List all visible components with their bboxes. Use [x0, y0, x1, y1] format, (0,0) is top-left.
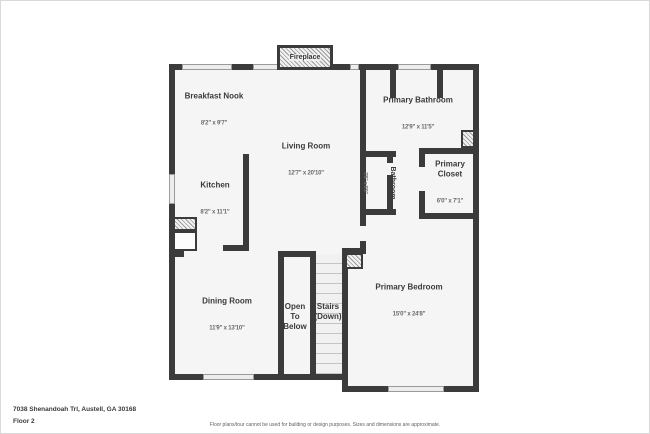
- window-dining-bottom: [203, 374, 254, 380]
- room-name: Breakfast Nook: [185, 92, 244, 102]
- room-name: Living Room: [282, 142, 330, 152]
- window-breakfast-top: [182, 64, 232, 70]
- room-label-kitchen: Kitchen 8'2" x 11'1": [200, 163, 229, 234]
- room-label-primary-bedroom: Primary Bedroom 15'0" x 24'8": [375, 265, 442, 336]
- wall-bathroom-right-upper: [387, 151, 393, 163]
- fireplace-label: Fireplace: [289, 54, 322, 61]
- room-label-primary-bathroom: Primary Bathroom 12'9" x 11'5": [383, 78, 453, 149]
- room-dims: 12'9" x 11'5": [383, 125, 453, 131]
- wall-bottom-left: [169, 374, 348, 380]
- kitchen-niche: [173, 231, 197, 251]
- wall-stairs-right: [342, 254, 348, 380]
- floorplan-image: Fireplace Breakfast Nook 8'2" x 9'7" Kit…: [0, 0, 650, 434]
- room-name: Stairs (Down): [314, 302, 341, 322]
- room-label-open-to-below: Open To Below: [283, 284, 307, 350]
- room-label-bathroom: Bathroom 3'6" x 6'9": [344, 166, 414, 199]
- room-name: Primary Bathroom: [383, 96, 453, 106]
- wall-kitchen-flange: [223, 245, 249, 251]
- room-dims: 8'2" x 11'1": [200, 210, 229, 216]
- room-label-breakfast-nook: Breakfast Nook 8'2" x 9'7": [185, 74, 244, 145]
- room-dims: 11'9" x 13'10": [202, 326, 252, 332]
- room-name: Primary Bedroom: [375, 283, 442, 293]
- wall-dining-top-stub: [169, 251, 184, 257]
- window-pbath-top: [398, 64, 431, 70]
- room-dims: 12'7" x 20'10": [282, 171, 330, 177]
- wall-living-suite-divider: [360, 70, 366, 226]
- room-name: Kitchen: [200, 181, 229, 191]
- room-dims: 3'6" x 6'9": [362, 166, 368, 199]
- room-dims: 6'0" x 7'1": [435, 199, 465, 205]
- room-label-dining-room: Dining Room 11'9" x 13'10": [202, 279, 252, 350]
- footer-address: 7038 Shenandoah Trl, Austell, GA 30168: [13, 406, 136, 413]
- room-name: Dining Room: [202, 297, 252, 307]
- fireplace-box: Fireplace: [277, 45, 333, 70]
- room-name: Bathroom: [387, 166, 396, 199]
- chimney-kitchen-icon: [173, 217, 197, 231]
- wall-right: [473, 64, 479, 392]
- footer-disclaimer: Floor plans/tour cannot be used for buil…: [1, 422, 649, 428]
- room-label-primary-closet: Primary Closet 6'0" x 7'1": [435, 142, 465, 223]
- room-name: Primary Closet: [435, 160, 465, 180]
- room-name: Open To Below: [283, 302, 307, 332]
- room-dims: 8'2" x 9'7": [185, 121, 244, 127]
- window-living-top-left: [253, 64, 279, 70]
- wall-kitchen-divider: [243, 154, 249, 251]
- room-dims: 15'0" x 24'8": [375, 312, 442, 318]
- chimney-bedroom-icon: [345, 253, 363, 269]
- window-bedroom-bottom: [388, 386, 444, 392]
- room-label-stairs: Stairs (Down): [314, 284, 341, 340]
- room-label-living-room: Living Room 12'7" x 20'10": [282, 124, 330, 195]
- wall-closet-left-upper: [419, 148, 425, 167]
- window-kitchen-left: [169, 174, 175, 204]
- window-living-top-right: [350, 64, 359, 70]
